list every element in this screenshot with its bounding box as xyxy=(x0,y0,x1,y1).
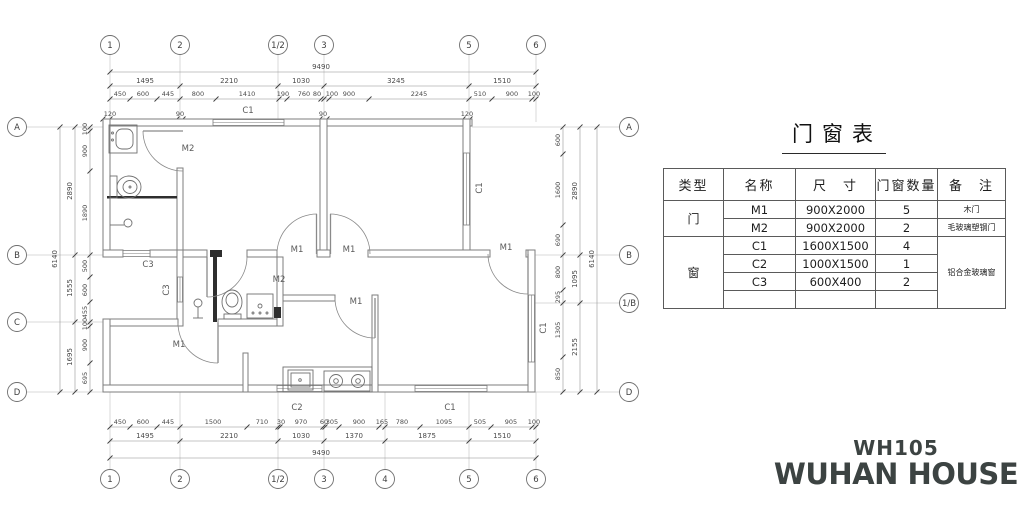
floor-plan-drawing: 9490 14952210103032451510 45060044580014… xyxy=(0,0,660,526)
grid-label: A xyxy=(626,123,632,133)
col-header-type: 类型 xyxy=(664,169,724,201)
window-C2-kitchen xyxy=(277,386,322,392)
cell-empty xyxy=(724,291,796,309)
col-header-qty: 门窗数量 xyxy=(876,169,938,201)
dim-text: 780 xyxy=(396,418,408,426)
dim-top-total: 9490 xyxy=(312,63,330,71)
grid-labels-left: ABCD xyxy=(14,123,21,398)
dim-text: 760 xyxy=(298,90,310,98)
dim-text: 1510 xyxy=(493,77,511,85)
cell-window-remark: 铝合金玻璃窗 xyxy=(938,237,1006,309)
dim-text: 800 xyxy=(192,90,204,98)
window-C3-bath xyxy=(123,251,150,257)
cell-qty: 5 xyxy=(876,201,938,219)
dim-text: 455 xyxy=(81,306,89,318)
dim-text: 6140 xyxy=(51,250,59,268)
dim-text: 100 xyxy=(528,90,540,98)
tag-label: M2 xyxy=(182,144,195,154)
cell-qty: 2 xyxy=(876,273,938,291)
type-group-door: 门 xyxy=(664,201,724,237)
cell-remark: 毛玻璃塑钢门 xyxy=(938,219,1006,237)
dim-text: 2155 xyxy=(571,338,579,356)
tag-label: M1 xyxy=(500,243,513,253)
brand-name: WUHAN HOUSE xyxy=(772,459,1020,489)
grid-label: B xyxy=(626,251,632,261)
dim-text: 1095 xyxy=(436,418,453,426)
tag-label: M1 xyxy=(350,297,363,307)
dim-text: 450 xyxy=(114,418,126,426)
dim-text: 2890 xyxy=(571,182,579,200)
table-row: 门 M1 900X2000 5 木门 xyxy=(664,201,1006,219)
dim-text: 295 xyxy=(554,291,562,303)
dim-text: 1030 xyxy=(292,77,310,85)
dim-text: 1495 xyxy=(136,77,154,85)
type-group-window: 窗 xyxy=(664,237,724,309)
grid-label: 1 xyxy=(107,475,112,485)
model-number: WH105 xyxy=(772,437,1020,459)
grid-label: 1/2 xyxy=(271,41,285,51)
walls xyxy=(103,119,535,392)
dim-bottom-fine: 4506004451500710309706030590016578010955… xyxy=(114,418,540,426)
schedule-title-wrap: 门窗表 xyxy=(663,118,1005,154)
tag-label: C1 xyxy=(444,403,455,413)
dim-text: 900 xyxy=(506,90,518,98)
tag-label: C3 xyxy=(142,260,153,270)
callout-text: 90 xyxy=(319,110,327,118)
cell-size: 600X400 xyxy=(796,273,876,291)
grid-label: 3 xyxy=(321,475,326,485)
dim-right-row2: 289010952155 xyxy=(571,182,579,356)
wall-thickness-callouts: 1209090120 xyxy=(104,110,473,118)
cell-name: M1 xyxy=(724,201,796,219)
grid-label: 2 xyxy=(177,475,182,485)
cell-empty xyxy=(876,291,938,309)
grid-label: 1 xyxy=(107,41,112,51)
callout-text: 120 xyxy=(461,110,473,118)
window-C1-bedroom-right xyxy=(464,153,470,225)
door-window-schedule: 类型 名称 尺 寸 门窗数量 备 注 门 M1 900X2000 5 木门 M2… xyxy=(663,168,1006,309)
window-C1-living-bottom xyxy=(415,386,487,392)
dim-left-fine: 1009001890500600455100900695 xyxy=(81,123,89,384)
tag-label: M2 xyxy=(273,275,286,285)
dim-text: 305 xyxy=(326,418,338,426)
callout-text: 120 xyxy=(104,110,116,118)
door-M1-living xyxy=(488,254,528,294)
grid-label: B xyxy=(14,251,20,261)
dim-text: 600 xyxy=(137,418,149,426)
dim-text: 1510 xyxy=(493,432,511,440)
dim-text: 2210 xyxy=(220,77,238,85)
grid-label: 1/2 xyxy=(271,475,285,485)
dim-bottom-row2: 149522101030137018751510 xyxy=(136,432,511,440)
grid-label: 1/B xyxy=(622,299,636,309)
dim-text: 9490 xyxy=(312,449,330,457)
dim-text: 30 xyxy=(277,418,285,426)
cell-qty: 1 xyxy=(876,255,938,273)
dim-text: 500 xyxy=(81,260,89,272)
dim-text: 100 xyxy=(528,418,540,426)
col-header-name: 名称 xyxy=(724,169,796,201)
grid-label: 6 xyxy=(533,475,538,485)
fixtures xyxy=(109,125,372,392)
cell-name: C2 xyxy=(724,255,796,273)
dim-text: 9490 xyxy=(312,63,330,71)
dim-text: 1890 xyxy=(81,205,89,222)
dim-text: 1095 xyxy=(571,270,579,288)
cell-remark: 木门 xyxy=(938,201,1006,219)
dim-text: 2890 xyxy=(66,182,74,200)
brand-block: WH105 WUHAN HOUSE xyxy=(772,437,1020,489)
dim-text: 1495 xyxy=(136,432,154,440)
dim-top-row2: 14952210103032451510 xyxy=(136,77,511,85)
tag-label: C2 xyxy=(291,403,302,413)
tag-label: C1 xyxy=(242,106,253,116)
dim-bottom-total: 9490 xyxy=(312,449,330,457)
bathroom1-toilet xyxy=(110,176,141,198)
grid-label: D xyxy=(14,388,21,398)
col-header-remark: 备 注 xyxy=(938,169,1006,201)
dim-text: 800 xyxy=(554,266,562,278)
cell-name: C3 xyxy=(724,273,796,291)
dim-text: 900 xyxy=(81,339,89,351)
dim-text: 1305 xyxy=(554,322,562,339)
grid-label: 5 xyxy=(466,41,471,51)
bathroom1-faucet xyxy=(110,219,132,227)
dim-text: 100 xyxy=(81,123,89,135)
dim-text: 690 xyxy=(554,234,562,246)
dim-text: 450 xyxy=(114,90,126,98)
schedule-header-row: 类型 名称 尺 寸 门窗数量 备 注 xyxy=(664,169,1006,201)
dim-text: 2245 xyxy=(411,90,428,98)
tag-label: C1 xyxy=(475,182,485,193)
dim-text: 1555 xyxy=(66,279,74,297)
dim-text: 165 xyxy=(376,418,388,426)
grid-label: D xyxy=(626,388,633,398)
dim-text: 445 xyxy=(162,90,174,98)
dim-text: 80 xyxy=(313,90,321,98)
dim-left-row2: 289015551695 xyxy=(66,182,74,366)
door-M2-bath1 xyxy=(143,131,183,171)
dim-text: 2210 xyxy=(220,432,238,440)
grid-label: 4 xyxy=(382,475,387,485)
col-header-size: 尺 寸 xyxy=(796,169,876,201)
cell-qty: 2 xyxy=(876,219,938,237)
dim-text: 1600 xyxy=(554,182,562,199)
bathroom2-basin xyxy=(247,294,273,318)
dim-text: 900 xyxy=(81,145,89,157)
dim-text: 1695 xyxy=(66,348,74,366)
tag-label: M1 xyxy=(291,245,304,255)
cell-name: M2 xyxy=(724,219,796,237)
dim-text: 1500 xyxy=(205,418,222,426)
dim-text: 970 xyxy=(295,418,307,426)
dimension-lines xyxy=(60,72,597,458)
grid-label: A xyxy=(14,123,20,133)
dim-top-fine: 4506004458001410190760801009002245510900… xyxy=(114,90,540,98)
cell-size: 900X2000 xyxy=(796,219,876,237)
cell-qty: 4 xyxy=(876,237,938,255)
plan-tags-vertical: C3C1C1 xyxy=(162,182,549,333)
tag-label: M1 xyxy=(173,340,186,350)
dim-text: 3245 xyxy=(387,77,405,85)
dim-text: 100 xyxy=(326,90,338,98)
tag-label: C3 xyxy=(162,284,172,295)
window-C3-side xyxy=(178,277,183,302)
tag-label: C1 xyxy=(539,322,549,333)
dim-text: 710 xyxy=(256,418,268,426)
bathroom2-shower xyxy=(193,299,203,318)
cell-empty xyxy=(796,291,876,309)
dim-text: 510 xyxy=(474,90,486,98)
dim-text: 850 xyxy=(554,368,562,380)
kitchen-sink xyxy=(288,370,313,390)
dim-text: 900 xyxy=(353,418,365,426)
bathroom1-sink xyxy=(109,125,137,153)
grid-label: 5 xyxy=(466,475,471,485)
cell-size: 1000X1500 xyxy=(796,255,876,273)
dim-text: 600 xyxy=(554,134,562,146)
dim-text: 1410 xyxy=(239,90,256,98)
cell-name: C1 xyxy=(724,237,796,255)
dimension-ticks-vertical xyxy=(58,125,600,395)
callout-text: 90 xyxy=(176,110,184,118)
dim-text: 505 xyxy=(474,418,486,426)
dim-text: 1875 xyxy=(418,432,436,440)
tag-label: M1 xyxy=(343,245,356,255)
window-C1-living-right xyxy=(529,295,535,362)
grid-label: 3 xyxy=(321,41,326,51)
dim-text: 600 xyxy=(81,284,89,296)
dim-text: 1370 xyxy=(345,432,363,440)
dim-text: 445 xyxy=(162,418,174,426)
window-C1-top xyxy=(213,120,284,126)
blueprint-page: 9490 14952210103032451510 45060044580014… xyxy=(0,0,1024,526)
grid-label: 2 xyxy=(177,41,182,51)
dim-left-total: 6140 xyxy=(51,250,59,268)
dim-text: 905 xyxy=(505,418,517,426)
dim-text: 1030 xyxy=(292,432,310,440)
dim-text: 190 xyxy=(277,90,289,98)
dim-right-total: 6140 xyxy=(588,250,596,268)
dim-text: 100 xyxy=(81,318,89,330)
schedule-title: 门窗表 xyxy=(782,118,886,154)
cell-size: 1600X1500 xyxy=(796,237,876,255)
table-row: 窗 C1 1600X1500 4 铝合金玻璃窗 xyxy=(664,237,1006,255)
bathroom2-toilet xyxy=(222,290,242,319)
cell-size: 900X2000 xyxy=(796,201,876,219)
dim-text: 695 xyxy=(81,372,89,384)
dim-text: 6140 xyxy=(588,250,596,268)
grid-label: 6 xyxy=(533,41,538,51)
grid-label: C xyxy=(14,318,20,328)
dim-text: 600 xyxy=(137,90,149,98)
dim-text: 900 xyxy=(343,90,355,98)
